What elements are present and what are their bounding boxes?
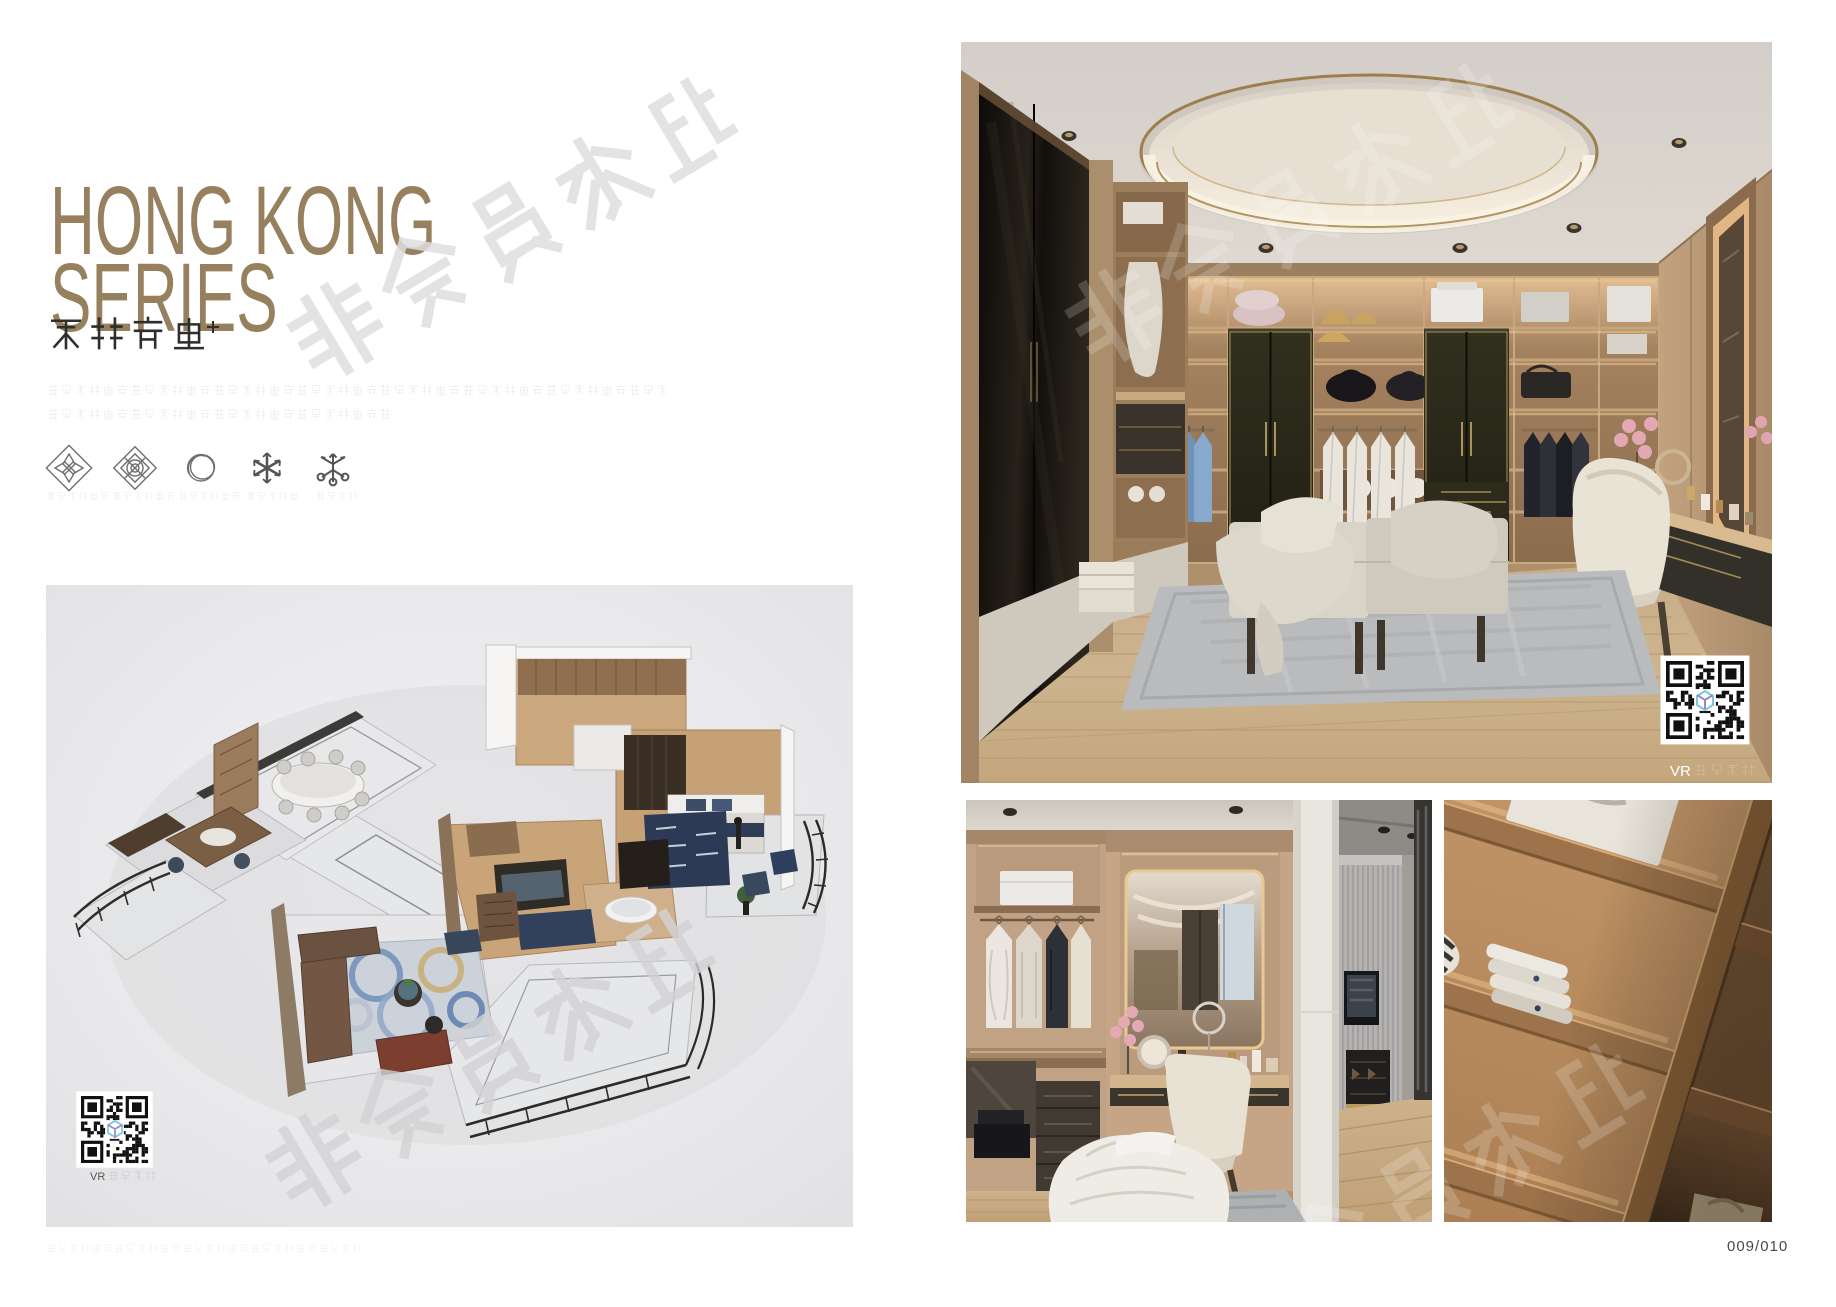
svg-text:VR: VR — [1670, 763, 1691, 780]
